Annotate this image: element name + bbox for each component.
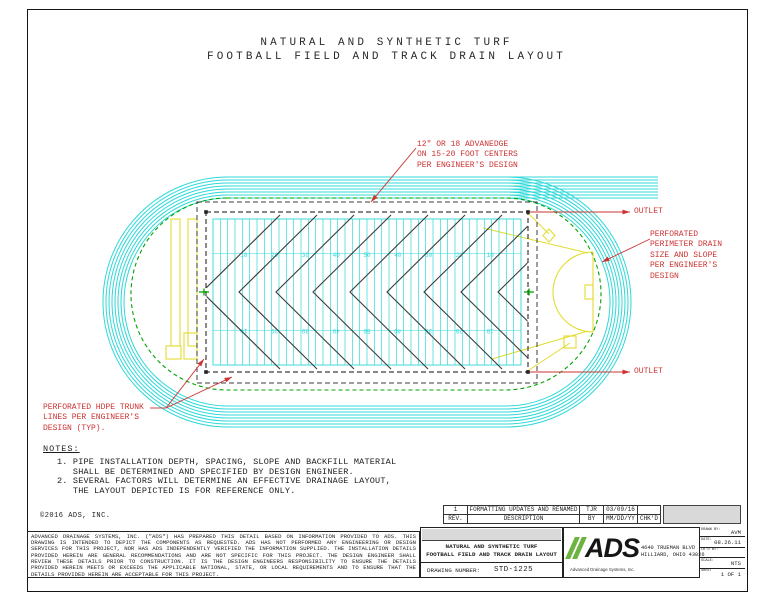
field-label: DATE: [701,538,712,542]
rev-row-number: 1 [444,506,468,515]
company-address: 4640 TRUEMAN BLVD HILLIARD, OHIO 43026 [641,545,705,559]
rev-row-date: 03/09/16 [604,506,638,515]
titleblock-gray-strip [422,529,561,541]
titleblock-fields: DRAWN BY: AVM DATE: 08.26.11 CK'D BY: SC… [700,527,745,578]
sheet-title-line2: FOOTBALL FIELD AND TRACK DRAIN LAYOUT [207,51,566,63]
revision-table: 1 FORMATTING UPDATES AND RENAMED TJR 03/… [443,505,661,524]
note-perimeter-drain: PERFORATED PERIMETER DRAIN SIZE AND SLOP… [650,230,722,282]
note-outlet-bottom: OUTLET [634,367,663,377]
rev-row-by: TJR [580,506,604,515]
field-checked-by: CK'D BY: [700,548,745,558]
titleblock-project-cell: NATURAL AND SYNTHETIC TURF FOOTBALL FIEL… [420,527,563,578]
rev-row-description: FORMATTING UPDATES AND RENAMED [468,506,580,515]
drawing-number-value: STD-1225 [494,566,533,574]
note-trunk-lines: PERFORATED HDPE TRUNK LINES PER ENGINEER… [43,403,144,434]
field-date: DATE: 08.26.11 [700,537,745,547]
field-value: 1 OF 1 [721,571,741,578]
notes-heading: NOTES: [43,444,80,454]
notes-body: 1. PIPE INSTALLATION DEPTH, SPACING, SLO… [57,458,396,497]
sheet-title-line1: NATURAL AND SYNTHETIC TURF [260,37,512,49]
disclaimer-text: ADVANCED DRAINAGE SYSTEMS, INC. ("ADS") … [27,531,420,578]
field-label: SCALE: [701,559,714,563]
field-scale: SCALE: NTS [700,558,745,568]
titleblock-logo-cell: ADS Advanced Drainage Systems, Inc. 4640… [563,527,700,578]
rev-header-by: BY [580,515,604,524]
drawing-sheet: 101020203030404050504040303020201010 NAT… [0,0,776,600]
field-label: DRAWN BY: [701,528,720,532]
rev-header-date: MM/DD/YY [604,515,638,524]
note-advanedge: 12" OR 18 ADVANEDGE ON 15-20 FOOT CENTER… [417,140,518,171]
field-drawn-by: DRAWN BY: AVM [700,527,745,537]
field-value: NTS [731,560,741,567]
titleblock-project-title: NATURAL AND SYNTHETIC TURF FOOTBALL FIEL… [421,543,562,559]
field-label: SHEET [701,569,712,573]
field-label: CK'D BY: [701,548,718,552]
company-tagline: Advanced Drainage Systems, Inc. [570,567,635,572]
rev-header-chkd: CHK'D [638,515,660,524]
ads-logo: ADS [570,535,639,565]
field-value: AVM [731,529,741,536]
copyright: ©2016 ADS, INC. [40,512,111,520]
drawing-number-row: DRAWING NUMBER: STD-1225 [421,562,562,577]
sheet-title: NATURAL AND SYNTHETIC TURFFOOTBALL FIELD… [27,36,746,64]
rev-header-rev: REV. [444,515,468,524]
note-outlet-top: OUTLET [634,207,663,217]
logo-wordmark: ADS [585,535,639,561]
field-sheet: SHEET 1 OF 1 [700,569,745,578]
approval-stamp-area [663,505,741,524]
rev-row-chkd [638,506,660,515]
field-value: 08.26.11 [714,539,741,546]
drawing-number-label: DRAWING NUMBER: [427,567,480,574]
rev-header-description: DESCRIPTION [468,515,580,524]
